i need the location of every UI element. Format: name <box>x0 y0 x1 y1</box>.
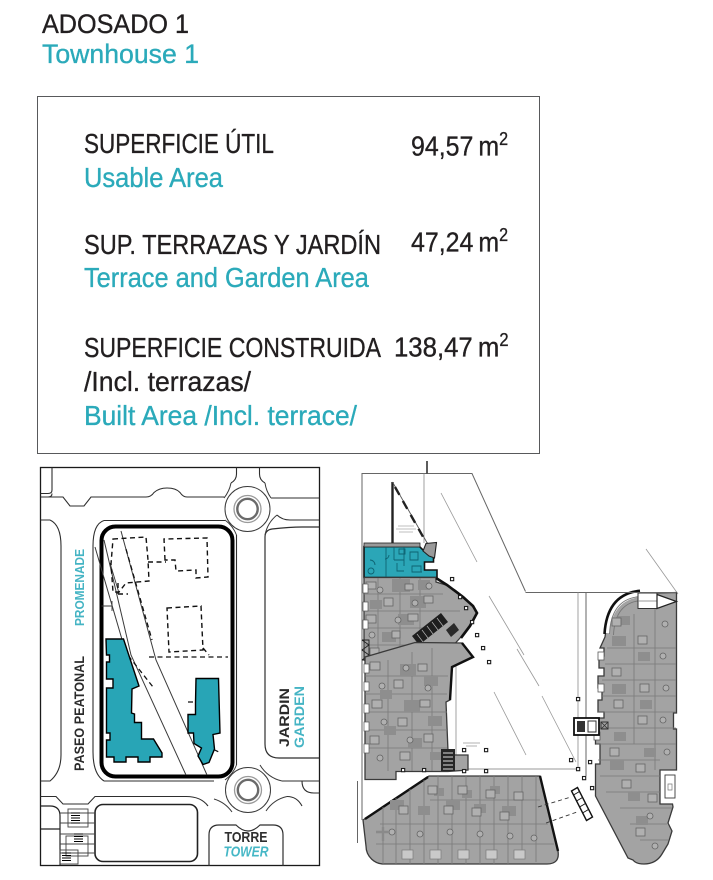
svg-text:PROMENADE: PROMENADE <box>72 549 87 626</box>
svg-text:GARDEN: GARDEN <box>291 686 307 748</box>
svg-text:JARDIN: JARDIN <box>276 688 292 747</box>
svg-text:TOWER: TOWER <box>224 844 269 861</box>
svg-text:PASEO PEATONAL: PASEO PEATONAL <box>71 656 87 771</box>
